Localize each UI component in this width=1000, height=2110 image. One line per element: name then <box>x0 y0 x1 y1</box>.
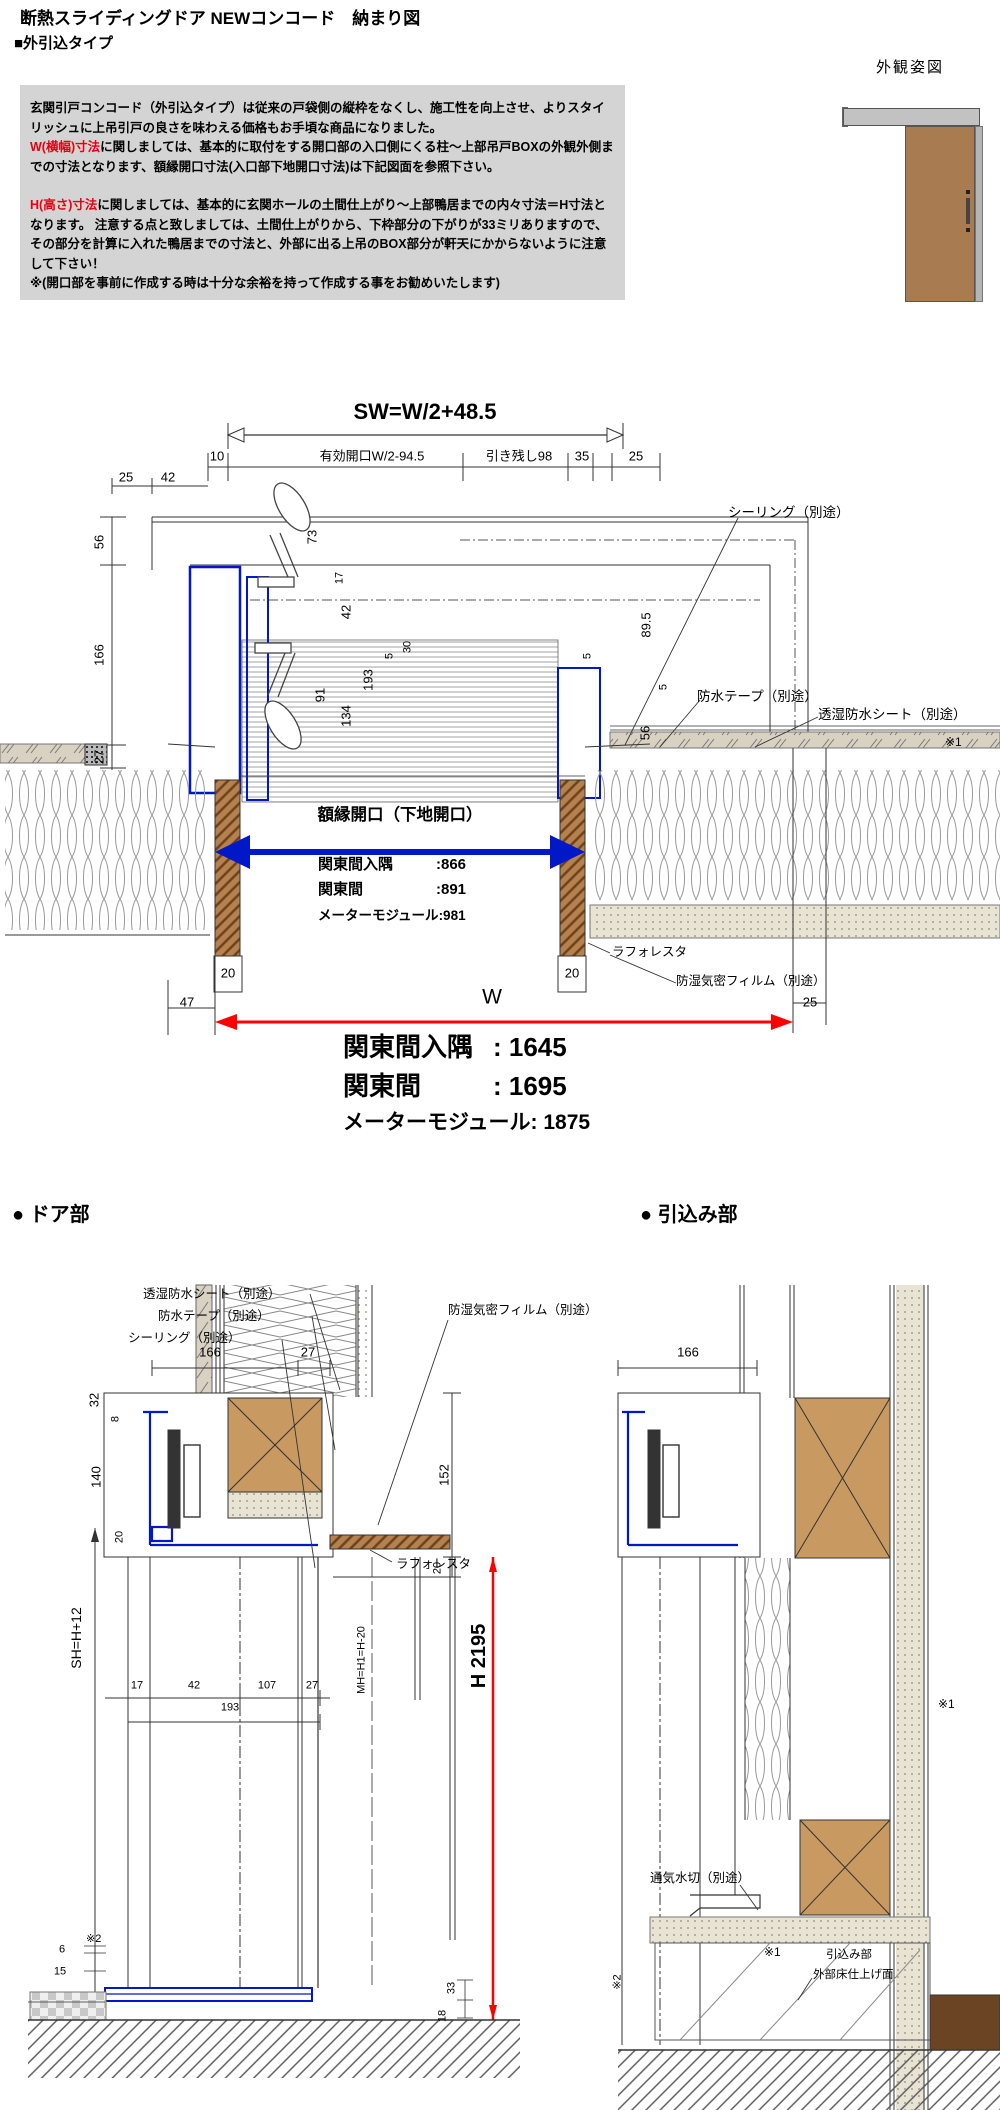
dim-134: 134 <box>340 705 353 727</box>
door-handle <box>966 198 970 224</box>
dim-effective-opening: 有効開口W/2-94.5 <box>320 450 425 463</box>
dim-33: 33 <box>447 1982 458 1994</box>
frame-opening-label: 額縁開口（下地開口） <box>318 807 483 824</box>
dim-20-right-post: 20 <box>565 967 579 980</box>
summary-row-kanto-irisumi: 関東間入隅: 1645 <box>343 1027 567 1064</box>
callout-vent-flashing: 通気水切（別途） <box>650 1872 750 1885</box>
w-dimension-highlight: W(横幅)寸法 <box>30 140 100 154</box>
drawing-sheet: 断熱スライディングドア NEWコンコード 納まり図 ■外引込タイプ 玄関引戸コン… <box>0 0 1000 2110</box>
dim-166-door: 166 <box>199 1346 221 1359</box>
description-paragraph-2: W(横幅)寸法に関しましては、基本的に取付をする開口部の入口側にくる柱～上部吊戸… <box>30 138 615 177</box>
dim-8: 8 <box>111 1416 122 1422</box>
dim-5-right: 5 <box>659 684 670 690</box>
callout-pullin-part: 引込み部 <box>826 1950 872 1962</box>
dim-56-left: 56 <box>93 535 106 549</box>
dim-42-door: 42 <box>188 1681 200 1692</box>
opening-table-row: 関東間入隅:866 <box>318 853 466 874</box>
dim-6: 6 <box>59 1945 65 1956</box>
door-edge-strip <box>975 126 983 302</box>
dim-25-row2: 25 <box>119 471 133 484</box>
dim-35: 35 <box>575 450 589 463</box>
page-subtitle: ■外引込タイプ <box>14 36 113 51</box>
dim-42-inner: 42 <box>340 605 353 619</box>
dim-166-pullin: 166 <box>677 1346 699 1359</box>
description-paragraph-4: ※(開口部を事前に作成する時は十分な余裕を持って作成する事をお勧めいたします) <box>30 274 615 294</box>
dim-25-top: 25 <box>629 450 643 463</box>
note-2-door: ※2 <box>86 1934 101 1945</box>
handle-dot-top <box>966 190 970 194</box>
dim-152: 152 <box>438 1464 451 1486</box>
opening-table-row: メーターモジュール:981 <box>318 904 466 924</box>
callout-waterproof-tape: 防水テープ（別途） <box>697 690 818 704</box>
callout-laforesta-door: ラフォレスタ <box>396 1558 471 1571</box>
dim-91: 91 <box>314 688 327 702</box>
dim-20-left-post: 20 <box>221 967 235 980</box>
dim-107: 107 <box>258 1681 276 1692</box>
note-2-pullin: ※2 <box>613 1974 624 1989</box>
dim-47: 47 <box>180 996 194 1009</box>
callout-sealing-door: シーリング（別途） <box>128 1332 241 1345</box>
dim-h-2195: H 2195 <box>469 1624 489 1689</box>
dim-sh-formula: SH=H+12 <box>69 1607 83 1668</box>
pullin-section-heading: ● 引込み部 <box>640 1205 738 1225</box>
opening-table-row: 関東間:891 <box>318 878 466 899</box>
note-1-pullin-step: ※1 <box>764 1946 781 1958</box>
page-title: 断熱スライディングドア NEWコンコード 納まり図 <box>20 10 420 27</box>
dim-17-door: 17 <box>131 1681 143 1692</box>
appearance-view-label: 外観姿図 <box>876 60 944 75</box>
note-1-pullin-wall: ※1 <box>938 1698 955 1710</box>
dim-73: 73 <box>306 530 319 544</box>
callout-breathable-sheet-door: 透湿防水シート（別途） <box>143 1288 281 1301</box>
callout-vapor-film-door: 防湿気密フィルム（別途） <box>448 1304 598 1317</box>
callout-laforesta: ラフォレスタ <box>612 946 687 959</box>
dim-mh-formula: MH=H1=H-20 <box>357 1626 368 1694</box>
dim-17: 17 <box>335 572 346 584</box>
dim-193: 193 <box>362 669 375 691</box>
dim-42-row2: 42 <box>161 471 175 484</box>
door-panel <box>905 126 975 302</box>
dim-remaining-98: 引き残し98 <box>486 450 552 463</box>
dim-27-door-b: 27 <box>306 1681 318 1692</box>
callout-waterproof-tape-door: 防水テープ（別途） <box>158 1310 270 1323</box>
summary-row-kanto: 関東間: 1695 <box>343 1066 567 1103</box>
dim-5-a: 5 <box>385 653 396 659</box>
dim-18: 18 <box>438 2010 449 2022</box>
dim-sw-formula: SW=W/2+48.5 <box>353 401 496 423</box>
callout-breathable-sheet: 透湿防水シート（別途） <box>818 708 967 722</box>
dim-5-b: 5 <box>583 653 594 659</box>
dim-30: 30 <box>403 641 414 653</box>
dim-w: W <box>482 987 502 1008</box>
description-box: 玄関引戸コンコード（外引込タイプ）は従来の戸袋側の縦枠をなくし、施工性を向上させ… <box>20 85 625 300</box>
dim-20-door: 20 <box>115 1531 126 1543</box>
callout-vapor-film: 防湿気密フィルム（別途） <box>676 975 826 988</box>
dim-10: 10 <box>210 450 224 463</box>
note-1-plan: ※1 <box>945 736 962 748</box>
dim-27-door: 27 <box>301 1346 315 1359</box>
dim-140: 140 <box>90 1466 103 1488</box>
dim-56-right: 56 <box>639 726 652 740</box>
dim-166-left: 166 <box>93 644 106 666</box>
dim-32: 32 <box>88 1393 101 1407</box>
dim-25-w: 25 <box>803 996 817 1009</box>
description-paragraph-1: 玄関引戸コンコード（外引込タイプ）は従来の戸袋側の縦枠をなくし、施工性を向上させ… <box>30 99 615 138</box>
dim-27-left: 27 <box>93 750 106 764</box>
handle-dot-bottom <box>966 228 970 232</box>
hanging-box-bar <box>843 108 980 126</box>
callout-exterior-floor: 外部床仕上げ面 <box>813 1970 894 1982</box>
dim-193-door: 193 <box>221 1703 239 1714</box>
dim-89-5: 89.5 <box>640 612 653 637</box>
dim-15: 15 <box>54 1967 66 1978</box>
summary-row-meter-module: メーターモジュール: 1875 <box>343 1106 590 1136</box>
description-paragraph-3: H(高さ)寸法に関しましては、基本的に玄関ホールの土間仕上がり～上部鴨居までの内… <box>30 196 615 274</box>
callout-sealing: シーリング（別途） <box>728 506 850 520</box>
h-dimension-highlight: H(高さ)寸法 <box>30 198 97 212</box>
door-section-heading: ● ドア部 <box>12 1205 90 1225</box>
